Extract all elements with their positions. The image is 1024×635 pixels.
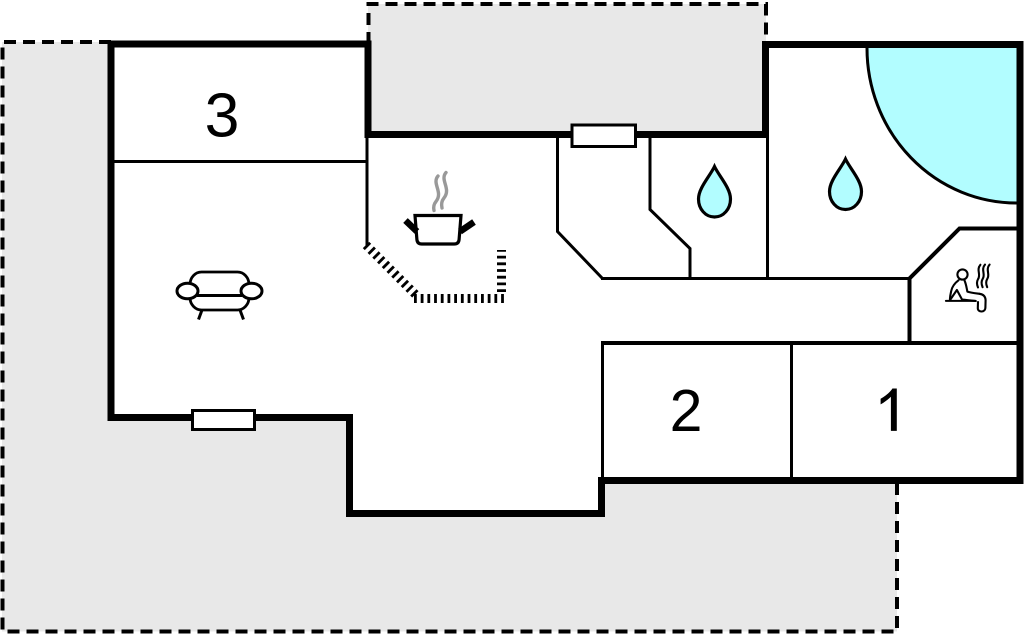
svg-text:2: 2 bbox=[670, 378, 703, 444]
svg-text:3: 3 bbox=[205, 81, 240, 151]
